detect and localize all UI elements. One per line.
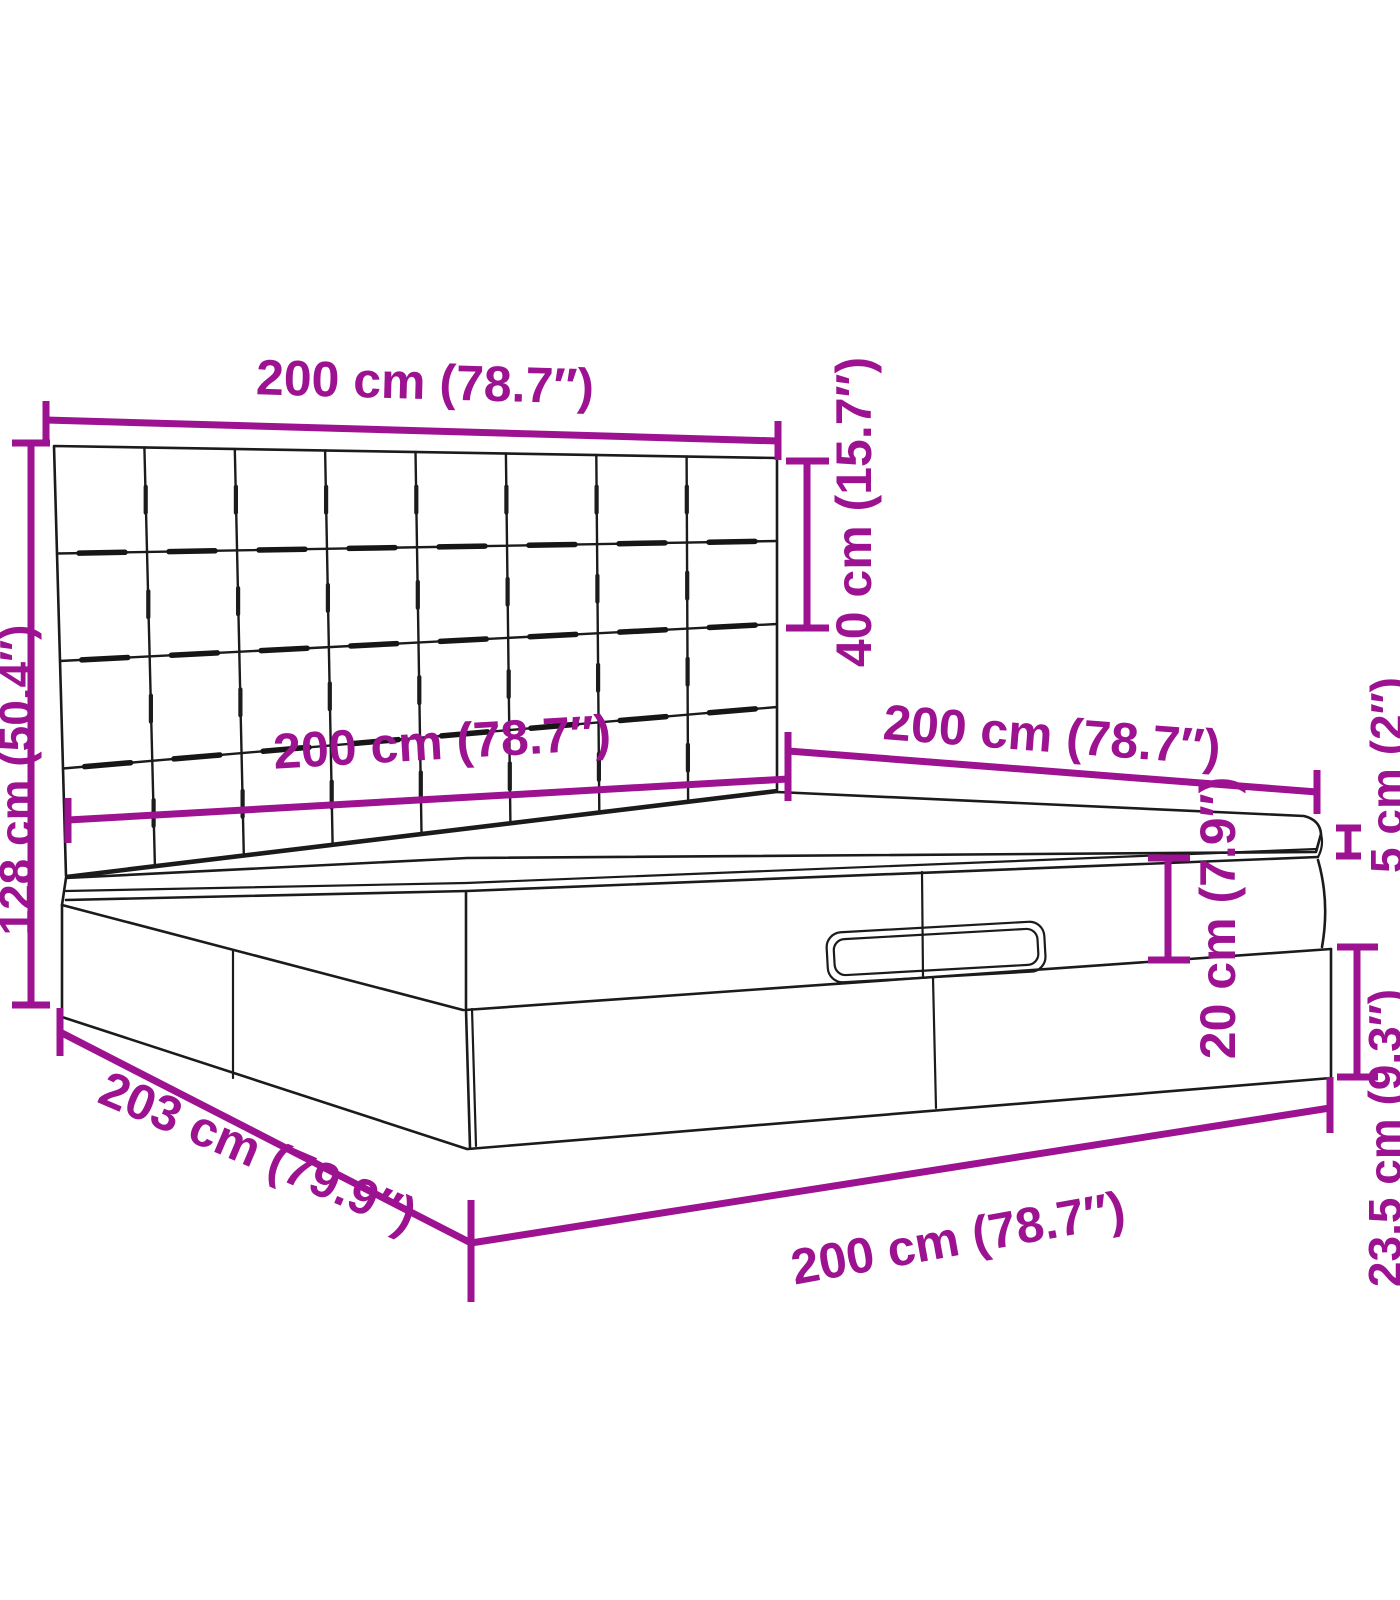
headboard-grid-line [85,763,131,767]
dim-label-headboard-width: 200 cm (78.7″) [255,349,594,414]
bed-diagram-canvas: 200 cm (78.7″) 40 cm (15.7″) 128 cm (50.… [0,0,1400,1600]
dim-topper-thickness: 5 cm (2″) [1336,677,1400,873]
base-front-corner-edge-inner [472,1009,476,1146]
dim-label-headboard-height: 40 cm (15.7″) [826,357,882,667]
lift-handle [826,921,1046,983]
headboard-grid-line [709,709,755,713]
dim-line-mattress-width [68,779,788,820]
headboard-grid-line [82,658,128,660]
upper-box-right-edge [1318,860,1325,947]
headboard-grid-line [709,625,755,627]
dim-overall-height: 128 cm (50.4″) [0,443,50,1005]
dim-overall-length: 203 cm (79.9″) [60,1008,471,1244]
headboard-grid-line [440,639,486,641]
headboard-grid-line [171,653,217,655]
dim-label-topper-thickness: 5 cm (2″) [1361,677,1400,873]
headboard-grid-line [530,634,576,636]
dim-label-upper-box-height: 20 cm (7.9″) [1190,777,1246,1059]
dim-line-headboard-width [46,420,778,441]
base-front-seam [933,978,936,1108]
base-front-corner-edge [466,1010,470,1148]
headboard-grid-line [619,543,665,544]
lift-handle-inner-outline [833,928,1039,975]
headboard-grid-line [169,551,215,552]
dim-label-base-width: 200 cm (78.7″) [787,1181,1130,1296]
dim-mattress-width: 200 cm (78.7″) [68,704,788,843]
headboard-grid-line [259,549,305,550]
dim-label-base-height: 23.5 cm (9.3″) [1359,989,1400,1287]
headboard-grid-line [349,548,395,549]
dim-upper-box-height: 20 cm (7.9″) [1148,777,1246,1059]
dim-base-height: 23.5 cm (9.3″) [1337,947,1400,1287]
bed-drawing [54,446,1331,1149]
dimension-diagram: 200 cm (78.7″) 40 cm (15.7″) 128 cm (50.… [0,0,1400,1600]
headboard-grid-line [709,541,755,542]
headboard-grid-line [529,545,575,546]
headboard-grid-line [174,755,220,759]
dim-label-overall-length: 203 cm (79.9″) [91,1060,424,1244]
headboard-grid-line [620,717,666,721]
upper-box-left-bottom-edge [62,905,463,1010]
mattress-piping-lower [66,857,1318,900]
headboard-grid-line [439,546,485,547]
dim-headboard-height: 40 cm (15.7″) [786,357,882,667]
dimension-annotations: 200 cm (78.7″) 40 cm (15.7″) 128 cm (50.… [0,349,1400,1302]
dim-base-width: 200 cm (78.7″) [471,1077,1330,1302]
base-front-bottom-edge [468,1078,1331,1149]
dim-label-overall-height: 128 cm (50.4″) [0,625,42,936]
dim-label-mattress-width: 200 cm (78.7″) [272,704,613,779]
headboard-grid-line [351,644,397,646]
dim-headboard-width: 200 cm (78.7″) [46,349,778,460]
headboard-grid-line [261,648,307,650]
headboard-grid-line [79,552,125,553]
upper-box-front-seam [922,872,923,977]
headboard-grid-line [620,630,666,632]
